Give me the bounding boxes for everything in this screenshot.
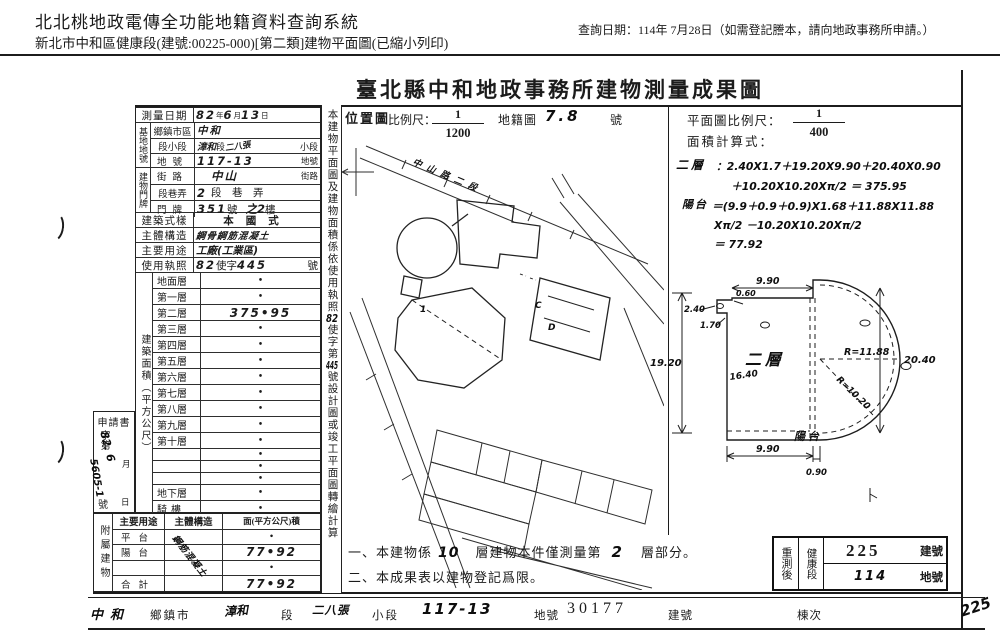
floor-value: • xyxy=(201,419,320,430)
survey-date-label: 測量日期 xyxy=(136,108,194,122)
system-title: 北北桃地政電傳全功能地籍資料查詢系統 xyxy=(35,8,359,33)
map-cell-letter-d: D xyxy=(548,323,556,333)
formula-head-second-floor: 二層 xyxy=(676,156,706,173)
license-number: 445 xyxy=(237,258,267,272)
floor-label: 第二層 xyxy=(153,305,201,320)
footer-building-number-value: 30177 xyxy=(567,600,627,618)
map-cell-letter-c: C xyxy=(535,301,542,311)
survey-date-month: 6 xyxy=(224,108,234,122)
lane-label: 段巷弄 xyxy=(151,185,195,200)
table-row-section: 段小段 漳和 段 二八張 小段 xyxy=(151,139,320,154)
structure-value: 鋼骨鋼筋混凝土 xyxy=(195,228,270,242)
lane-value: 2 xyxy=(197,186,207,200)
footer-separator xyxy=(88,597,985,598)
application-title: 申請書 xyxy=(94,414,134,429)
annex-total-value: 77•92 xyxy=(223,577,320,591)
floor-label xyxy=(153,449,201,460)
annex-area: • xyxy=(223,563,320,573)
footer-land-number-value: 117-13 xyxy=(422,600,492,618)
floor-label: 第六層 xyxy=(153,369,201,384)
map-cell-number-1: 1 xyxy=(420,305,426,315)
floor-row: • xyxy=(153,449,320,461)
road-name-label: 中山路二段 xyxy=(411,157,484,196)
lane-suffix: 段 巷 弄 xyxy=(211,185,264,200)
side-note-license-year: 82 xyxy=(326,313,339,324)
floor-label: 第四層 xyxy=(153,337,201,352)
floor-row: • xyxy=(153,461,320,473)
floor-label xyxy=(153,473,201,484)
survey-date-year: 82 xyxy=(196,108,216,122)
subsection-suffix: 小段 xyxy=(300,140,318,153)
resurvey-land-unit: 地號 xyxy=(920,569,943,585)
floor-label: 地面層 xyxy=(153,273,201,288)
annex-row-balcony: 陽台 77•92 xyxy=(113,545,320,561)
plan-balcony-label: 陽台 xyxy=(794,430,822,443)
dim-top-9-90: 9.90 xyxy=(756,276,780,287)
side-note-mid: 使字第 xyxy=(327,324,338,360)
footer-building-index-label: 棟次 xyxy=(797,607,822,623)
table-row-usage: 主要用途 工廠(工業區) xyxy=(136,243,320,258)
plan-scale-fraction-bar xyxy=(793,122,845,123)
table-row-lane: 段巷弄 2 段 巷 弄 xyxy=(151,185,320,201)
dim-right-20-40: 20.40 xyxy=(904,355,936,366)
usage-label: 主要用途 xyxy=(136,243,194,257)
annex-use: 平台 xyxy=(113,530,165,545)
note1-part-b: 層建物本件僅測量第 xyxy=(476,542,602,561)
resurvey-building-number: 225 xyxy=(846,541,881,561)
location-scale-fraction-bar xyxy=(432,123,484,124)
query-date: 查詢日期：114年 7月28日（如需登記謄本，請向地政事務所申請。） xyxy=(578,21,935,38)
annex-header-row: 主要用途 主體構造 面(平方公尺)積 xyxy=(113,514,320,530)
floor-value-second: 375•95 xyxy=(201,306,320,320)
dim-left-19-20: 19.20 xyxy=(650,358,682,369)
cadastral-map-label: 地籍圖 xyxy=(498,111,537,128)
floor-label: 第七層 xyxy=(153,385,201,400)
table-row-land-no: 地號 117-13 地號 xyxy=(151,154,320,168)
floor-row: 第十層• xyxy=(153,433,320,449)
floor-label: 地下層 xyxy=(153,485,201,500)
resurvey-building-unit: 建號 xyxy=(920,543,943,559)
section-value: 漳和 xyxy=(197,139,216,153)
scanned-cadastral-document-page: 北北桃地政電傳全功能地籍資料查詢系統 新北市中和區健康段(建號:00225-00… xyxy=(0,0,1000,635)
footer-township-label: 鄉鎮市 xyxy=(150,607,191,623)
location-scale-numerator: 1 xyxy=(432,107,484,122)
resurvey-land-number: 114 xyxy=(854,569,887,584)
footer-subsection-value: 二八張 xyxy=(312,602,350,618)
floor-label: 第十層 xyxy=(153,433,201,448)
punch-hole-mark-bottom xyxy=(42,435,66,467)
door-group-label: 建物門牌 xyxy=(136,168,151,212)
site-group-label: 基地地號 xyxy=(136,123,151,167)
survey-date-day: 13 xyxy=(241,108,261,122)
land-no-value: 117-13 xyxy=(197,154,254,168)
footer-section-value: 漳和 xyxy=(223,601,248,620)
floor-value: • xyxy=(201,461,320,472)
floor-row: 第七層• xyxy=(153,385,320,401)
location-map-sketch: 中山路二段 C D 1 xyxy=(342,138,664,590)
unit-year: 年 xyxy=(216,110,224,121)
application-number: 5605-1 xyxy=(87,458,105,498)
floor-value: • xyxy=(201,487,320,498)
floor-row: 第四層• xyxy=(153,337,320,353)
footer-township-value: 中和 xyxy=(90,604,130,623)
dim-notch-1-70: 1.70 xyxy=(700,321,721,331)
side-note-strip: 本建物平面圖及建物面積係依使用執照82使字第445號設計圖或竣工平面圖轉繪計算 xyxy=(321,105,342,593)
resurvey-building-row: 225 建號 xyxy=(824,538,946,564)
formula-line: ＝ 77.92 xyxy=(714,236,763,252)
header-rule xyxy=(0,54,1000,56)
table-row-license: 使用執照 82 使字 445 號 xyxy=(136,258,320,273)
footer-building-number-label: 建號 xyxy=(668,607,693,623)
plan-scale-denominator: 400 xyxy=(793,125,845,140)
floor-row: 地面層• xyxy=(153,273,320,289)
area-calculation-label: 面積計算式： xyxy=(687,131,774,150)
land-no-label: 地號 xyxy=(151,154,195,168)
note1-part-c: 層部分。 xyxy=(641,542,697,561)
annex-header-area: 面(平方公尺)積 xyxy=(223,515,320,527)
cadastral-map-number: 7.8 xyxy=(545,107,581,125)
annex-row-total: 合計 77•92 xyxy=(113,576,320,591)
footer-section-label: 段 xyxy=(281,607,293,623)
subsection-value: 二八張 xyxy=(224,139,251,153)
annex-area: • xyxy=(223,532,320,542)
floor-value: • xyxy=(201,355,320,366)
dim-notch-2-40: 2.40 xyxy=(684,305,705,315)
floor-value: • xyxy=(201,449,320,460)
license-year: 82 xyxy=(196,258,216,272)
annex-table: 附屬建物 主要用途 主體構造 面(平方公尺)積 平台 • 陽台 77•92 • xyxy=(93,513,321,592)
footer-land-number-label: 地號 xyxy=(534,607,559,623)
building-area-section: 建築面積（平方公尺） 地面層• 第一層• 第二層375•95 第三層• 第四層•… xyxy=(136,273,320,514)
floor-row: 地下層• xyxy=(153,485,320,501)
resurvey-label: 重測後 xyxy=(774,538,799,589)
land-no-suffix: 地號 xyxy=(301,155,318,167)
floor-value: • xyxy=(201,371,320,382)
style-value: 本國式 xyxy=(194,213,320,228)
floor-row: 第二層375•95 xyxy=(153,305,320,321)
table-row-survey-date: 測量日期 82年 6月 13日 xyxy=(136,108,320,123)
punch-hole-mark-top xyxy=(42,211,66,243)
site-group: 基地地號 鄉鎮市區 中和 段小段 漳和 段 二八張 小段 地號 xyxy=(136,123,320,168)
floor-value: • xyxy=(201,275,320,286)
application-day-unit: 日 xyxy=(121,496,130,508)
application-suffix: 號 xyxy=(98,496,108,511)
street-value: 中山 xyxy=(211,168,238,184)
annex-row-platform: 平台 • xyxy=(113,530,320,546)
dim-notch-0-60: 0.60 xyxy=(736,289,756,298)
sheet-bottom-border xyxy=(88,628,985,630)
floor-row: 第一層• xyxy=(153,289,320,305)
page-title: 臺北縣中和地政事務所建物測量成果圖 xyxy=(260,74,860,104)
formula-head-balcony: 陽台 xyxy=(682,196,708,212)
floor-value: • xyxy=(201,387,320,398)
style-label: 建築式樣 xyxy=(136,213,194,227)
annex-use: 陽台 xyxy=(113,545,165,560)
annex-total-label: 合計 xyxy=(113,576,165,591)
floor-label: 第五層 xyxy=(153,353,201,368)
floor-value: • xyxy=(201,435,320,446)
side-note-post: 號設計圖或竣工平面圖轉繪計算 xyxy=(327,371,338,539)
floor-row: • xyxy=(153,473,320,485)
application-date: 82. 6 xyxy=(97,430,117,463)
cadastral-map-suffix: 號 xyxy=(610,111,622,128)
street-suffix: 街路 xyxy=(301,170,318,182)
floor-label: 第一層 xyxy=(153,289,201,304)
annex-group-label: 附屬建物 xyxy=(94,514,113,591)
note1-part-a: 一、本建物係 xyxy=(348,542,432,561)
floor-row: 第三層• xyxy=(153,321,320,337)
floor-label: 第八層 xyxy=(153,401,201,416)
resurvey-section-name: 健康段 xyxy=(799,538,824,589)
building-area-group-label: 建築面積（平方公尺） xyxy=(136,273,153,514)
license-suffix: 號 xyxy=(308,258,319,273)
floor-row: 第五層• xyxy=(153,353,320,369)
plan-scale-label: 平面圖比例尺： xyxy=(687,110,782,129)
survey-table: 測量日期 82年 6月 13日 基地地號 鄉鎮市區 中和 段小段 漳和 段 xyxy=(135,107,321,513)
license-label: 使用執照 xyxy=(136,258,194,272)
floor-value: • xyxy=(201,339,320,350)
side-note-license-number: 445 xyxy=(326,360,339,371)
floor-value: • xyxy=(201,473,320,484)
floor-value: • xyxy=(201,403,320,414)
floor-label: 第九層 xyxy=(153,417,201,432)
side-note-pre: 本建物平面圖及建物面積係依使用執照 xyxy=(327,109,338,313)
unit-month: 月 xyxy=(234,110,242,121)
resurvey-land-row: 114 地號 xyxy=(824,564,946,589)
floor-plan-drawing: 19.20 20.40 9.90 9.90 0.90 2.40 1.70 0.6… xyxy=(648,268,963,508)
note1-floor-count: 10 xyxy=(438,545,459,561)
annex-area-balcony: 77•92 xyxy=(223,545,320,559)
location-scale-label: 比例尺： xyxy=(388,111,436,128)
plan-floor-label: 二層 xyxy=(745,350,785,369)
table-row-street: 街路 中山 街路 xyxy=(151,168,320,185)
floor-row: 第六層• xyxy=(153,369,320,385)
floor-label xyxy=(153,461,201,472)
structure-label: 主體構造 xyxy=(136,228,194,242)
document-subtitle: 新北市中和區健康段(建號:00225-000)[第二類]建物平面圖(已縮小列印) xyxy=(35,32,448,52)
floor-value: • xyxy=(201,291,320,302)
formula-line: ＋10.20X10.20Xπ/2 ＝ 375.95 xyxy=(731,178,907,194)
license-mid: 使字 xyxy=(216,258,237,273)
floor-value: • xyxy=(201,323,320,334)
dim-radius-outer: R=11.88 xyxy=(844,347,890,358)
annex-row-blank: • xyxy=(113,561,320,577)
street-label: 街路 xyxy=(151,168,195,184)
resurvey-stamp-box: 重測後 健康段 225 建號 114 地號 xyxy=(772,536,948,591)
plan-scale-numerator: 1 xyxy=(793,106,845,121)
note-line-2: 二、本成果表以建物登記爲限。 xyxy=(348,567,544,586)
note1-surveyed-floor: 2 xyxy=(612,543,623,561)
dim-radius-inner: R=10.20 xyxy=(834,375,872,412)
location-map-title: 位置圖 xyxy=(345,108,390,127)
annex-header-structure: 主體構造 xyxy=(165,514,223,529)
form-bottom-border xyxy=(93,592,962,594)
unit-day: 日 xyxy=(261,110,269,121)
footer-subsection-label: 小段 xyxy=(372,607,399,623)
formula-line: Xπ/2 －10.20X10.20Xπ/2 xyxy=(714,217,862,233)
floor-row: 第九層• xyxy=(153,417,320,433)
dim-bottom-9-90: 9.90 xyxy=(756,444,780,455)
annex-header-use: 主要用途 xyxy=(113,514,165,529)
floor-row: 第八層• xyxy=(153,401,320,417)
township-value: 中和 xyxy=(197,123,222,138)
section-label: 段小段 xyxy=(151,139,195,153)
table-row-structure: 主體構造 鋼骨鋼筋混凝土 xyxy=(136,228,320,243)
usage-value: 工廠(工業區) xyxy=(196,243,258,258)
township-label: 鄉鎮市區 xyxy=(151,123,195,138)
dim-bottom-0-90: 0.90 xyxy=(806,468,827,478)
door-group: 建物門牌 街路 中山 街路 段巷弄 2 段 巷 弄 xyxy=(136,168,320,213)
table-row-township: 鄉鎮市區 中和 xyxy=(151,123,320,139)
table-row-style: 建築式樣 本國式 xyxy=(136,213,320,228)
formula-line: ＝(9.9＋0.9＋0.9)X1.68＋11.88X11.88 xyxy=(712,198,934,214)
application-month-unit: 月 xyxy=(122,458,131,470)
floor-label: 第三層 xyxy=(153,321,201,336)
dim-inner-16-40: 16.40 xyxy=(729,369,759,383)
application-box: 申請書 字第 82. 6 月 5605-1 號 日 xyxy=(93,411,135,513)
note-line-1: 一、本建物係 10 層建物本件僅測量第 2 層部分。 xyxy=(348,542,697,561)
annex-use xyxy=(113,561,165,576)
formula-line: ：2.40X1.7＋19.20X9.90＋20.40X0.90 xyxy=(716,158,941,174)
